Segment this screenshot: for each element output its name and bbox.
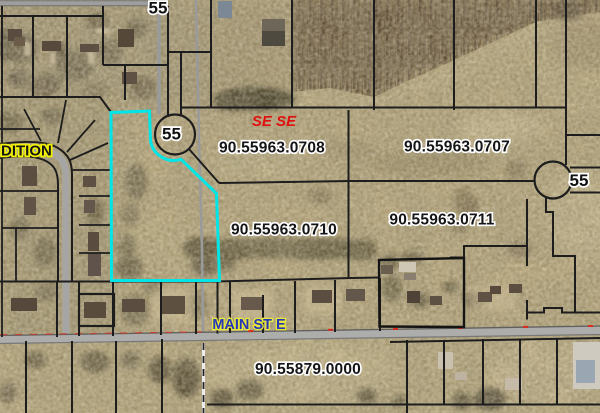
- svg-text:90.55963.0707: 90.55963.0707: [404, 139, 510, 156]
- svg-text:55: 55: [149, 0, 168, 18]
- svg-text:90.55879.0000: 90.55879.0000: [255, 361, 361, 378]
- svg-text:90.55963.0711: 90.55963.0711: [389, 212, 494, 229]
- svg-text:55: 55: [570, 171, 589, 190]
- svg-text:90.55963.0710: 90.55963.0710: [231, 222, 337, 239]
- svg-text:55: 55: [162, 125, 181, 144]
- svg-text:DITION: DITION: [1, 143, 52, 160]
- svg-text:90.55963.0708: 90.55963.0708: [219, 140, 325, 157]
- svg-text:SE SE: SE SE: [252, 113, 297, 130]
- svg-text:MAIN ST E: MAIN ST E: [212, 317, 286, 333]
